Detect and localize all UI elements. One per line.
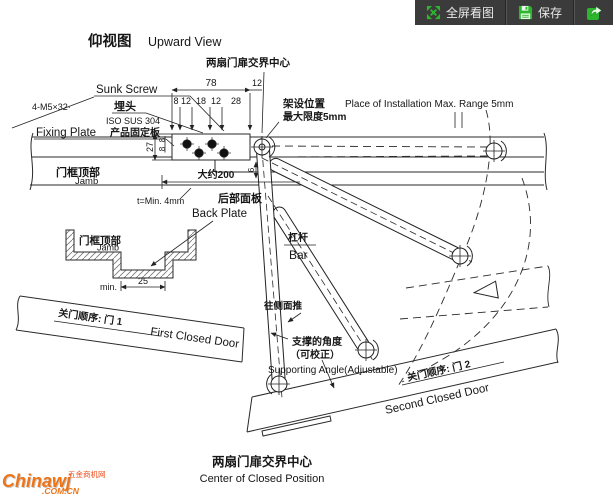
footer-caption-en: Center of Closed Position (200, 473, 325, 485)
door-closer-technical-drawing: 仰视图 Upward View 两扇门扉交界中心 (0, 0, 613, 496)
door2-label-en: Second Closed Door (384, 382, 490, 417)
back-plate-label-cn: 后部面板 (218, 191, 263, 205)
pivot-plate (251, 136, 275, 158)
door2-label-cn: 关门顺序: 门 2 (406, 357, 472, 384)
install-label-en: Place of Installation Max. Range 5mm (345, 99, 513, 110)
dim-sub-18: 18 (196, 96, 206, 106)
dim-sub-28: 28 (231, 96, 241, 106)
watermark-domain: .COM.CN (42, 487, 79, 496)
support-angle-label-en: Supporting Angle(Adjustable) (268, 365, 398, 376)
max-range-label: 最大限度5mm (283, 110, 346, 123)
pivot-top-right (483, 140, 506, 162)
countersunk-label: 埋头 (114, 99, 136, 113)
dim-12: 12 (252, 78, 262, 88)
watermark-site-name: 五金商机网 (68, 471, 106, 479)
drawing-title-en: Upward View (148, 35, 222, 49)
dim-min: min. (100, 282, 117, 292)
pivot-bottom (267, 373, 290, 395)
dim-thickness: t=Min. 4mm (137, 196, 184, 206)
dashed-door-break (548, 266, 550, 307)
dim-25: 25 (138, 276, 148, 286)
dim-sub-12b: 12 (211, 96, 221, 106)
support-angle-note: （可校正） (290, 348, 340, 361)
share-arrow-icon (586, 5, 602, 21)
top-center-label: 两扇门扉交界中心 (206, 56, 290, 69)
door1-label-en: First Closed Door (150, 326, 240, 351)
dim-approx-200: 大约200 (198, 168, 235, 181)
fullscreen-button[interactable]: 全屏看图 (415, 0, 505, 25)
toolbar: 全屏看图 保存 (415, 0, 613, 25)
material-label: ISO SUS 304 (106, 116, 160, 126)
dim-sub-8: 8 (173, 96, 178, 106)
fixing-plate-label-cn: 产品固定板 (110, 126, 161, 139)
drawing-title-cn: 仰视图 (88, 32, 132, 50)
fixing-plate-label-en: Fixing Plate (36, 127, 96, 139)
sunk-screw-label: Sunk Screw (96, 84, 158, 96)
fullscreen-expand-icon (426, 5, 441, 20)
jamb-section-detail: 门框顶部 Jamb (66, 230, 196, 278)
screw-spec-label: 4-M5×32· (32, 102, 71, 112)
push-side-label: 往侧面推 (264, 300, 303, 312)
share-button[interactable] (575, 0, 613, 25)
bar-label-cn: 杠杆 (288, 231, 308, 244)
leader-lines (12, 72, 504, 388)
jamb-label-en: Jamb (75, 176, 98, 187)
install-label-cn: 架设位置 (282, 97, 325, 110)
save-button-label: 保存 (538, 4, 562, 21)
bar-label-en: Bar (289, 248, 308, 262)
dim-sub-12: 12 (181, 96, 191, 106)
save-floppy-icon (518, 5, 533, 20)
dim-8b: 8 (158, 146, 167, 151)
dim-27: 27 (145, 142, 155, 152)
image-viewer: 仰视图 Upward View 两扇门扉交界中心 (0, 0, 613, 496)
watermark: Chinawj 五金商机网 .COM.CN (2, 465, 122, 495)
frame-rails (30, 133, 547, 190)
footer-caption-cn: 两扇门扉交界中心 (212, 454, 313, 469)
back-plate-label-en: Back Plate (192, 208, 247, 220)
main-bar (256, 144, 286, 392)
save-button[interactable]: 保存 (507, 0, 573, 25)
dim-6: 6 (247, 167, 256, 172)
dim-78: 78 (205, 78, 217, 89)
support-bar (271, 205, 372, 354)
door-1 (16, 296, 244, 362)
fullscreen-button-label: 全屏看图 (446, 4, 494, 21)
direction-arrow-icon (473, 281, 498, 301)
section-jamb-label-en: Jamb (97, 243, 119, 253)
support-angle-label-cn: 支撑的角度 (291, 335, 343, 348)
